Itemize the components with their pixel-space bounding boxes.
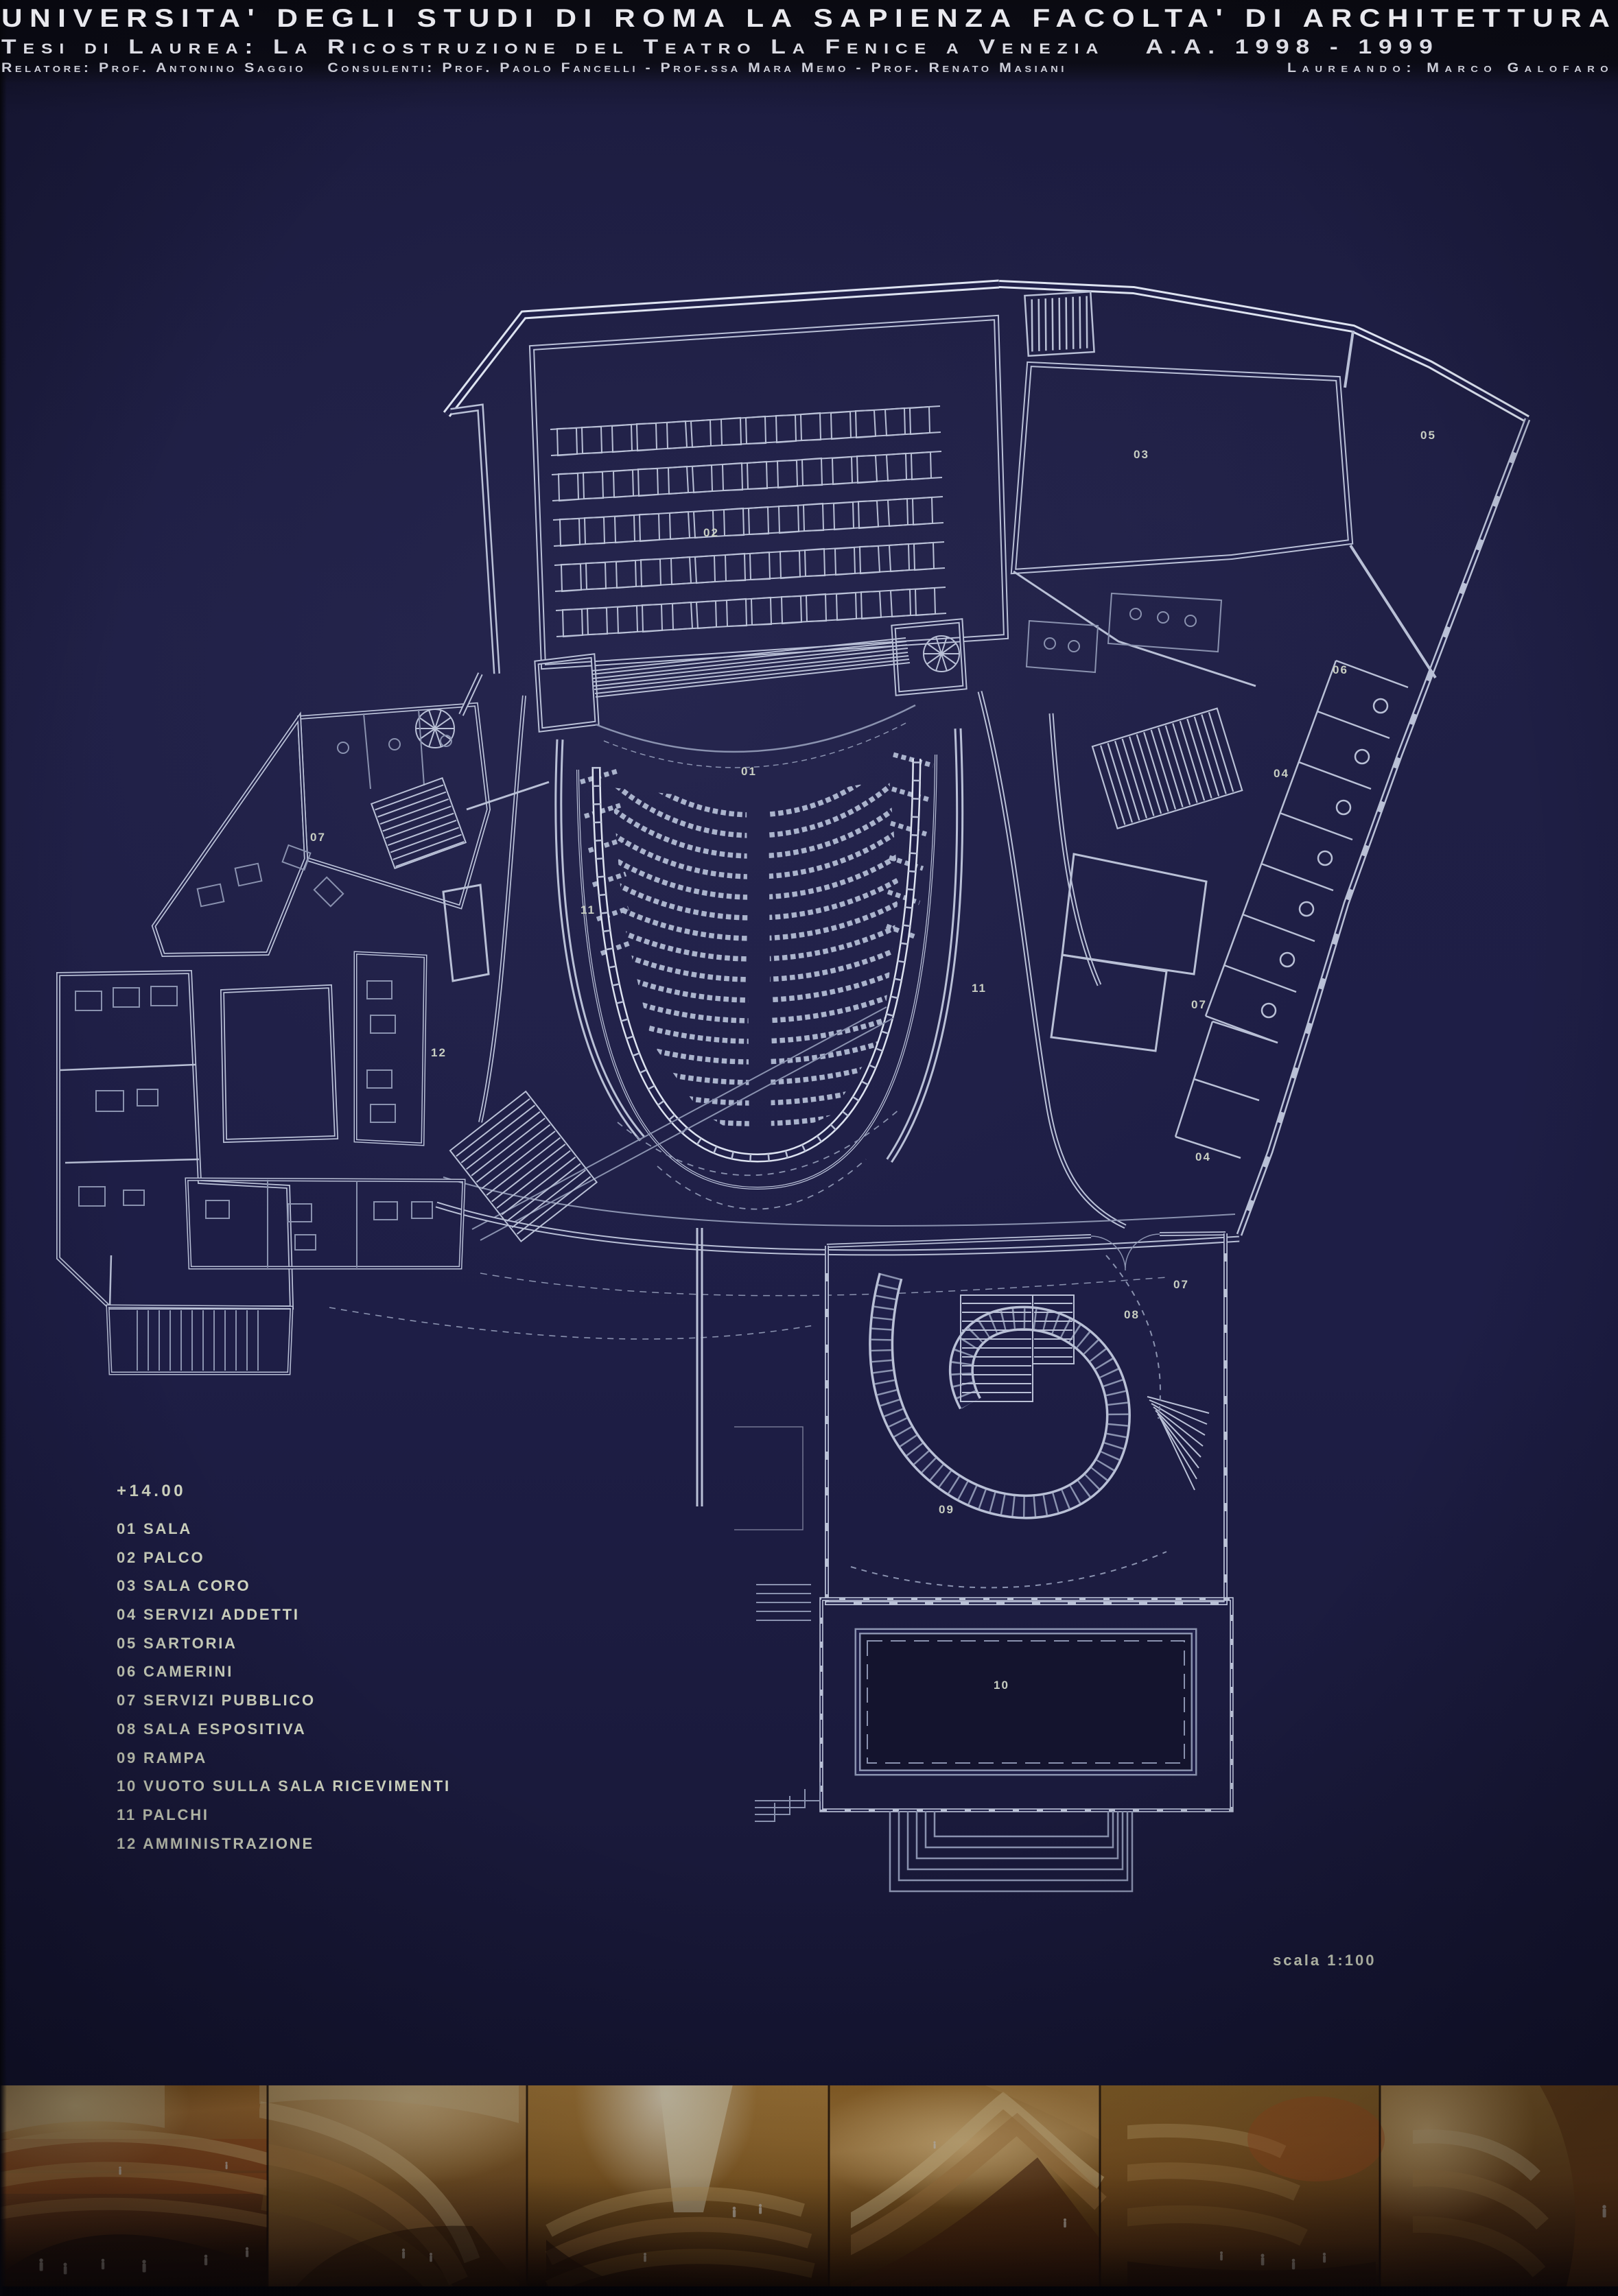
svg-text:08: 08: [1124, 1308, 1140, 1321]
svg-text:12: 12: [431, 1046, 447, 1059]
svg-text:11: 11: [972, 982, 987, 995]
svg-text:11: 11: [581, 903, 596, 916]
svg-text:04: 04: [1274, 767, 1289, 780]
svg-text:05: 05: [1420, 429, 1436, 442]
svg-text:02: 02: [703, 526, 719, 539]
svg-text:07: 07: [310, 831, 326, 844]
svg-text:06: 06: [1333, 663, 1348, 676]
svg-text:09: 09: [939, 1503, 954, 1516]
svg-text:07: 07: [1173, 1278, 1189, 1291]
svg-text:01: 01: [741, 765, 757, 778]
svg-text:07: 07: [1191, 998, 1207, 1011]
svg-text:03: 03: [1134, 448, 1149, 461]
svg-text:10: 10: [994, 1679, 1009, 1692]
svg-text:04: 04: [1195, 1150, 1211, 1163]
